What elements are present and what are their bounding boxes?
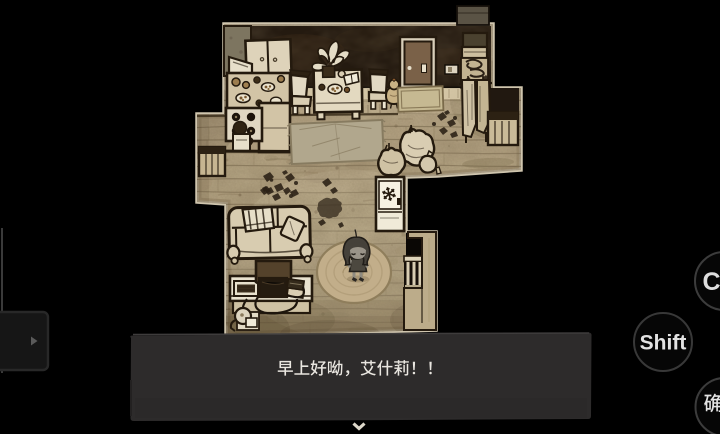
svg-text:Ctrl: Ctrl xyxy=(702,268,720,296)
svg-text:Shift: Shift xyxy=(640,332,687,355)
